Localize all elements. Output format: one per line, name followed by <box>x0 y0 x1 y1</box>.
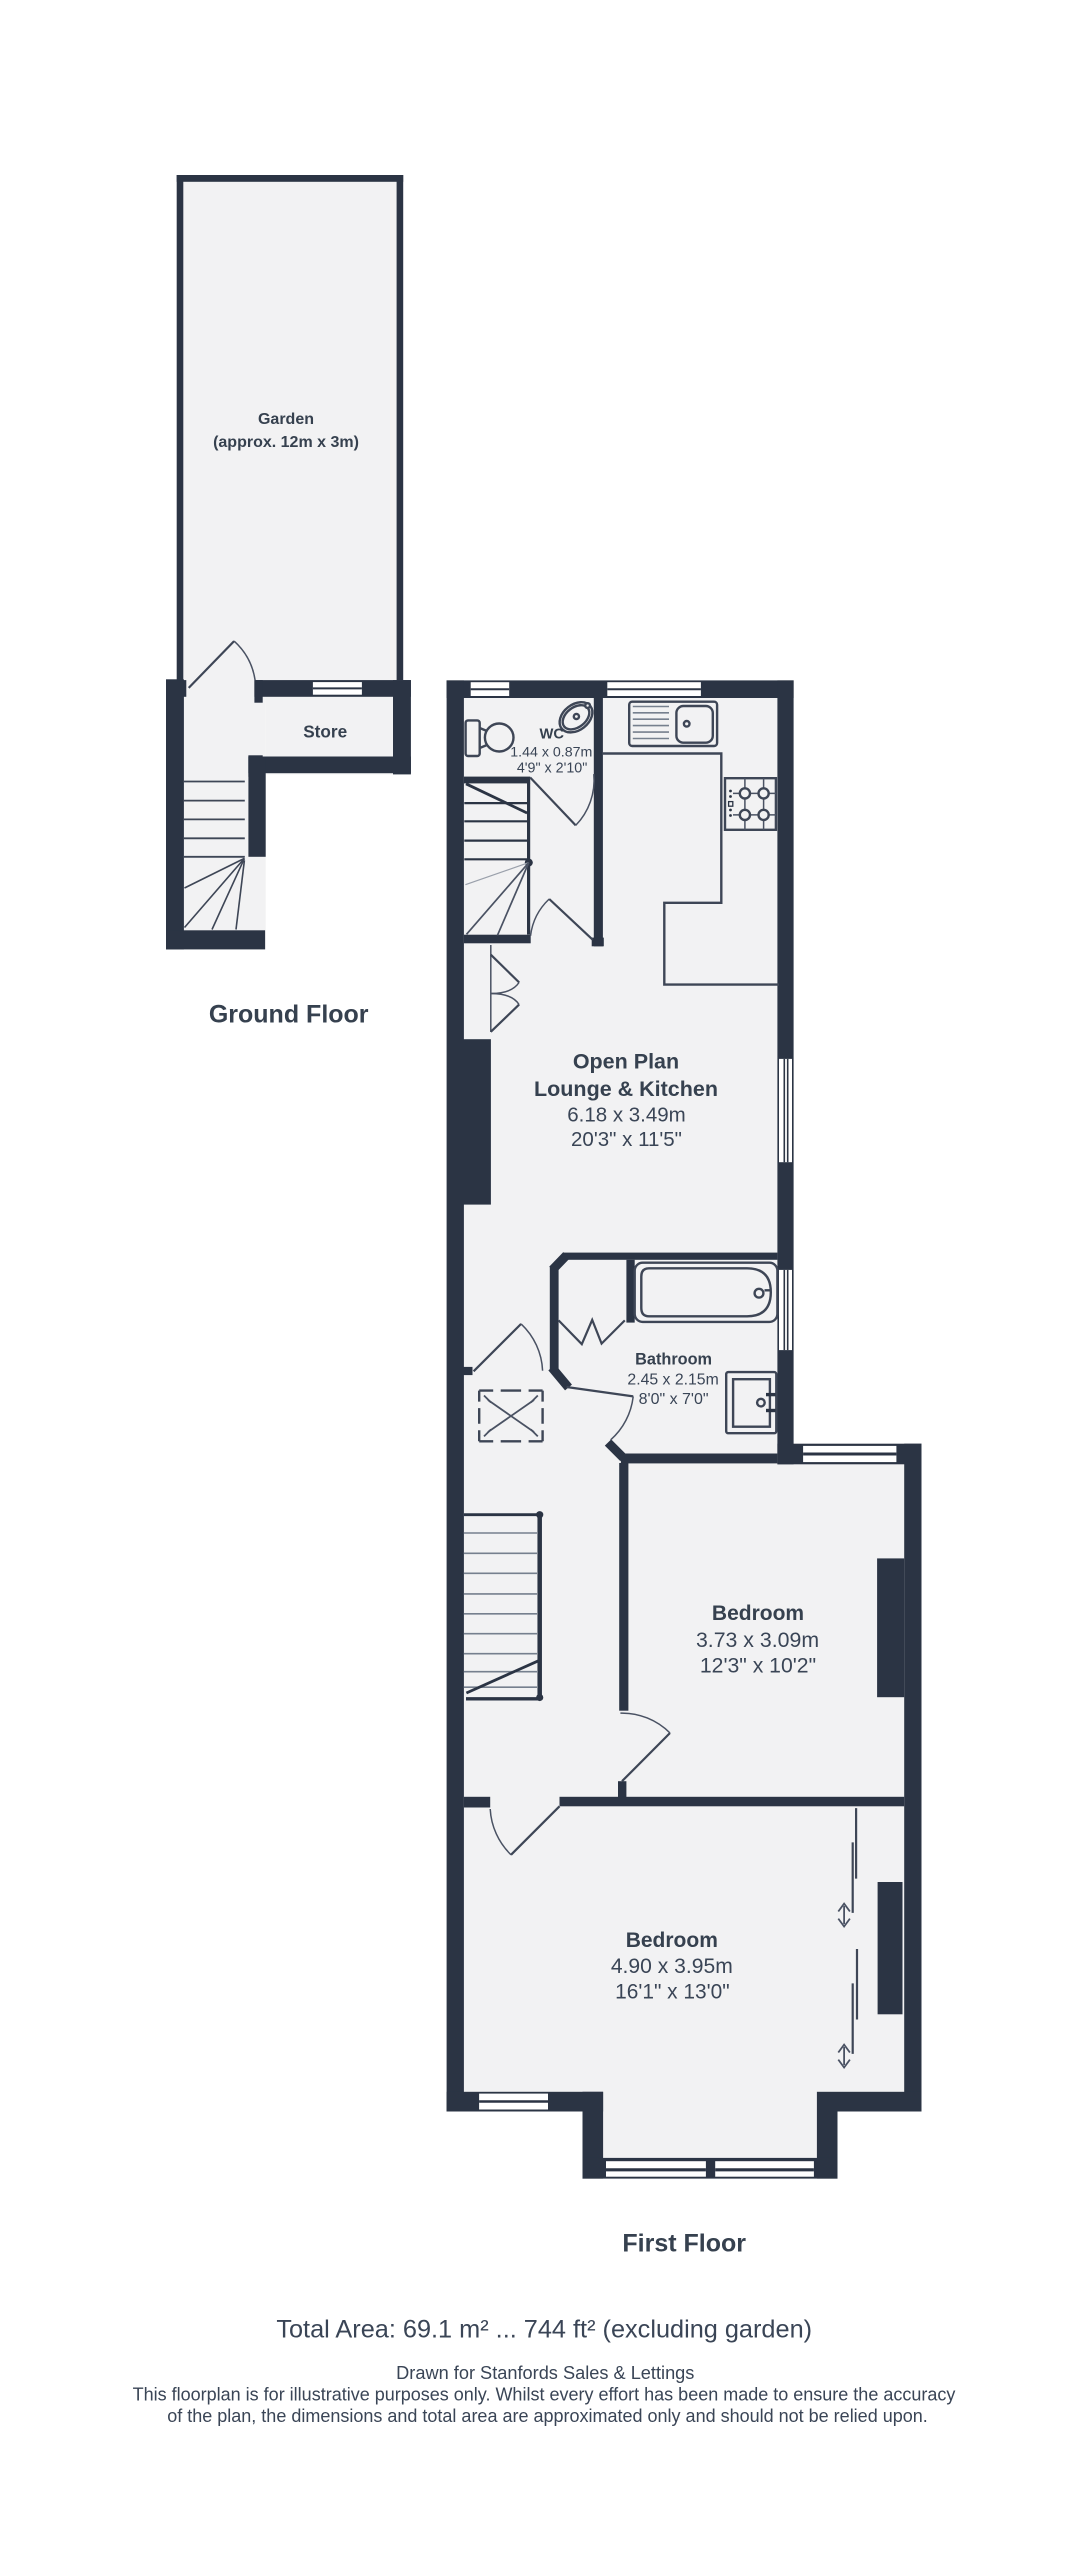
svg-text:(approx. 12m x 3m): (approx. 12m x 3m) <box>213 434 359 451</box>
svg-text:Open Plan: Open Plan <box>573 1050 679 1074</box>
svg-text:Lounge & Kitchen: Lounge & Kitchen <box>534 1077 718 1101</box>
svg-text:Garden: Garden <box>258 411 314 428</box>
svg-text:Bathroom: Bathroom <box>635 1351 712 1369</box>
svg-text:4.90 x 3.95m: 4.90 x 3.95m <box>611 1955 733 1978</box>
svg-text:Ground Floor: Ground Floor <box>209 1000 369 1028</box>
svg-text:4'9" x 2'10": 4'9" x 2'10" <box>517 760 587 776</box>
svg-text:16'1" x 13'0": 16'1" x 13'0" <box>615 1981 730 2004</box>
svg-text:Drawn for Stanfords Sales & Le: Drawn for Stanfords Sales & Lettings <box>396 2363 694 2383</box>
svg-text:Bedroom: Bedroom <box>712 1602 804 1625</box>
svg-text:of the plan, the dimensions an: of the plan, the dimensions and total ar… <box>167 2406 928 2426</box>
svg-text:Store: Store <box>303 722 347 742</box>
svg-text:Bedroom: Bedroom <box>626 1929 718 1952</box>
svg-text:This floorplan is for illustra: This floorplan is for illustrative purpo… <box>133 2385 956 2405</box>
svg-text:6.18 x 3.49m: 6.18 x 3.49m <box>567 1103 686 1126</box>
svg-text:1.44 x 0.87m: 1.44 x 0.87m <box>510 744 592 760</box>
svg-text:Total Area: 69.1 m² ... 744 ft: Total Area: 69.1 m² ... 744 ft² (excludi… <box>276 2316 812 2344</box>
svg-text:WC: WC <box>540 727 565 743</box>
svg-text:2.45 x 2.15m: 2.45 x 2.15m <box>627 1372 718 1389</box>
svg-text:20'3" x 11'5": 20'3" x 11'5" <box>571 1128 682 1151</box>
svg-text:12'3" x 10'2": 12'3" x 10'2" <box>700 1654 816 1677</box>
svg-text:3.73 x 3.09m: 3.73 x 3.09m <box>696 1628 819 1652</box>
svg-text:8'0" x 7'0": 8'0" x 7'0" <box>639 1391 709 1408</box>
svg-text:First Floor: First Floor <box>622 2229 746 2257</box>
